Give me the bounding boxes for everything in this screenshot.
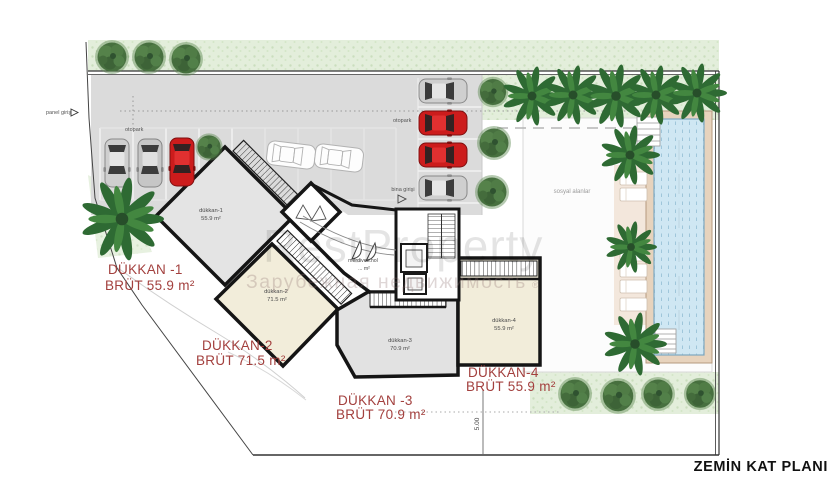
car-silver (419, 175, 467, 202)
annotation-dukkan-2-name: DÜKKAN-2 (202, 338, 273, 353)
car-sketch (266, 140, 317, 170)
watermark-registered-icon: ® (532, 280, 539, 290)
social-areas-label: sosyal alanlar (554, 189, 591, 195)
round-tree (475, 175, 509, 209)
otopark-right-label: otopark (393, 118, 412, 124)
car-silver (419, 78, 467, 105)
round-tree (477, 126, 511, 160)
annotation-dukkan-3-area: BRÜT 70.9 m² (336, 407, 426, 422)
annotation-dukkan-4-area: BRÜT 55.9 m² (466, 379, 556, 394)
annotation-dukkan-1-name: DÜKKAN -1 (108, 262, 183, 277)
room-area-dukkan-1: 55.9 m² (201, 216, 221, 222)
panel-entrance-arrow-icon (71, 109, 78, 116)
car-red (419, 110, 467, 137)
room-area-dukkan-3: 70.9 m² (390, 346, 410, 352)
round-tree (195, 133, 222, 160)
car-silver (137, 139, 164, 187)
watermark: RestProperty Зарубежная недвижимость ® (246, 220, 543, 293)
annotation-dukkan-2-area: BRÜT 71.5 m² (196, 353, 286, 368)
otopark-left-label: otopark (125, 127, 144, 133)
dimension-value: 5.00 (474, 417, 481, 430)
annotation-dukkan-4-name: DÜKKAN-4 (468, 365, 539, 380)
annotation-dukkan-1-area: BRÜT 55.9 m² (105, 278, 195, 293)
round-tree (600, 378, 636, 414)
room-area-dukkan-4: 55.9 m² (494, 326, 514, 332)
round-tree (558, 377, 592, 411)
room-label-dukkan-3: dükkan-3 (388, 338, 412, 344)
annotation-dukkan-3-name: DÜKKAN -3 (338, 393, 413, 408)
site-plan-page: panel giriş otopark otopark bina girişi … (0, 0, 832, 480)
round-tree (641, 377, 675, 411)
watermark-subtitle: Зарубежная недвижимость (246, 271, 527, 293)
watermark-brand: RestProperty (263, 220, 543, 272)
room-area-dukkan-2: 71.5 m² (267, 297, 287, 303)
room-label-dukkan-4: dükkan-4 (492, 318, 517, 324)
panel-entrance-label: panel giriş (46, 110, 71, 116)
round-tree (684, 378, 716, 410)
car-sketch (314, 143, 365, 173)
car-red (169, 138, 196, 186)
site-plan-drawing: panel giriş otopark otopark bina girişi … (0, 0, 832, 480)
round-tree (478, 77, 509, 108)
car-red (419, 142, 467, 169)
round-tree (132, 40, 166, 74)
room-label-dukkan-1: dükkan-1 (199, 208, 223, 214)
round-tree (95, 40, 129, 74)
page-title: ZEMİN KAT PLANI (694, 458, 828, 475)
building-entrance-label: bina girişi (391, 187, 414, 193)
round-tree (169, 42, 203, 76)
